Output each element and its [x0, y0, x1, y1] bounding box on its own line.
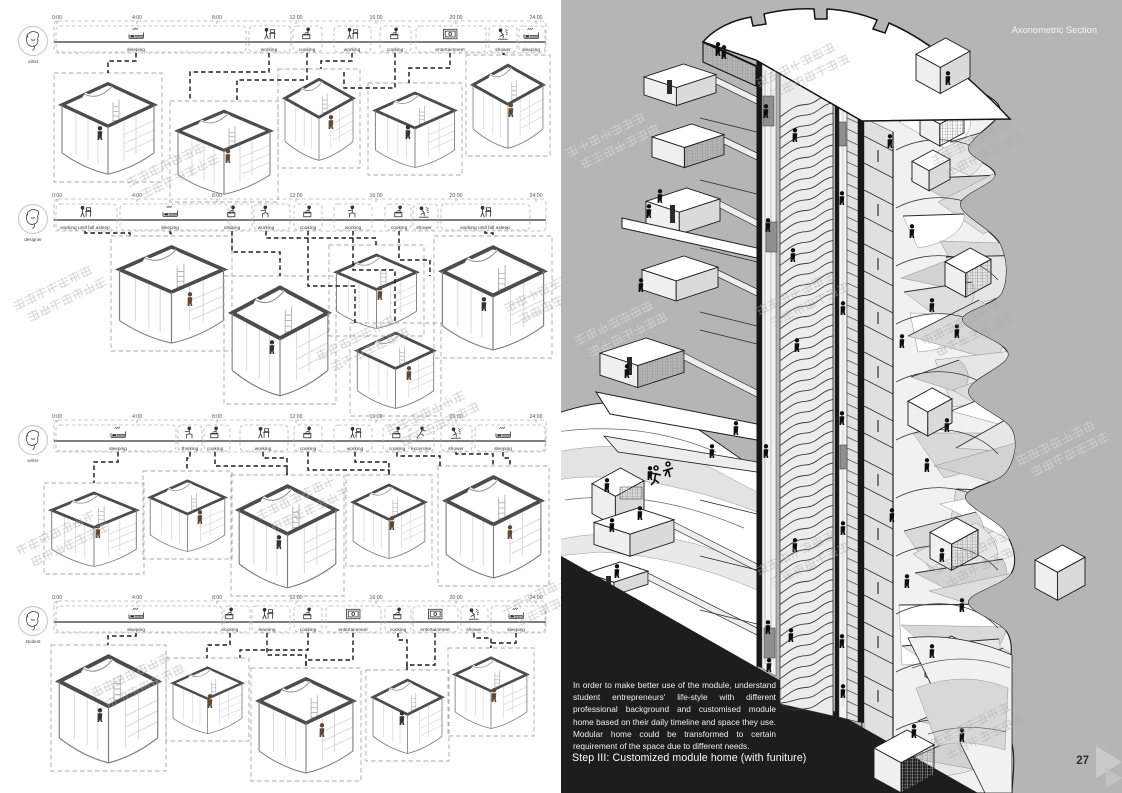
- svg-text:shower: shower: [495, 47, 511, 53]
- svg-text:8:00: 8:00: [212, 414, 222, 420]
- svg-text:shower: shower: [448, 446, 464, 452]
- svg-text:learning: learning: [258, 627, 275, 633]
- svg-text:sleeping: sleeping: [494, 446, 512, 452]
- svg-text:artist: artist: [28, 59, 39, 64]
- svg-text:student: student: [25, 639, 41, 644]
- svg-text:designer: designer: [24, 237, 42, 242]
- svg-text:working: working: [255, 446, 272, 452]
- svg-text:12:00: 12:00: [290, 193, 303, 199]
- svg-text:Axonometric Section: Axonometric Section: [1012, 25, 1097, 35]
- svg-text:cooking: cooking: [224, 225, 241, 231]
- svg-text:24:00: 24:00: [530, 193, 543, 199]
- svg-text:cooking: cooking: [299, 47, 316, 53]
- svg-text:thinking: thinking: [182, 446, 199, 452]
- svg-text:27: 27: [1076, 755, 1089, 767]
- svg-text:sleeping: sleeping: [522, 47, 540, 53]
- svg-text:16:00: 16:00: [370, 414, 383, 420]
- svg-text:20:00: 20:00: [450, 15, 463, 21]
- svg-text:sleeping: sleeping: [507, 627, 525, 633]
- svg-text:16:00: 16:00: [370, 595, 383, 601]
- svg-text:0:00: 0:00: [52, 595, 62, 601]
- svg-text:working until fall asleep: working until fall asleep: [60, 225, 110, 231]
- svg-text:working: working: [345, 225, 362, 231]
- svg-text:24:00: 24:00: [530, 15, 543, 21]
- svg-text:4:00: 4:00: [132, 595, 142, 601]
- svg-text:sleeping: sleeping: [127, 47, 145, 53]
- svg-text:cooking: cooking: [300, 225, 317, 231]
- svg-text:4:00: 4:00: [132, 414, 142, 420]
- svg-text:cooking: cooking: [387, 47, 404, 53]
- svg-text:entertainment: entertainment: [420, 627, 450, 633]
- svg-text:cooking: cooking: [391, 225, 408, 231]
- svg-text:working: working: [344, 47, 361, 53]
- svg-text:4:00: 4:00: [132, 15, 142, 21]
- svg-text:4:00: 4:00: [132, 193, 142, 199]
- svg-text:sleeping: sleeping: [161, 225, 179, 231]
- svg-text:20:00: 20:00: [450, 595, 463, 601]
- svg-text:entertainment: entertainment: [338, 627, 368, 633]
- svg-text:shower: shower: [466, 627, 482, 633]
- svg-text:0:00: 0:00: [52, 414, 62, 420]
- svg-text:16:00: 16:00: [370, 15, 383, 21]
- svg-text:cooking: cooking: [300, 446, 317, 452]
- svg-text:working: working: [258, 225, 275, 231]
- svg-text:cooking: cooking: [389, 446, 406, 452]
- svg-text:writer: writer: [27, 458, 39, 463]
- svg-text:0:00: 0:00: [52, 193, 62, 199]
- svg-text:sleeping: sleeping: [127, 627, 145, 633]
- svg-text:cooking: cooking: [300, 627, 317, 633]
- svg-text:20:00: 20:00: [450, 193, 463, 199]
- svg-text:working: working: [261, 47, 278, 53]
- svg-text:12:00: 12:00: [290, 15, 303, 21]
- svg-text:8:00: 8:00: [212, 15, 222, 21]
- svg-text:24:00: 24:00: [530, 414, 543, 420]
- svg-text:entertainment: entertainment: [435, 47, 465, 53]
- svg-text:excercise: excercise: [411, 446, 432, 452]
- svg-text:working: working: [347, 446, 364, 452]
- svg-text:cooking: cooking: [390, 627, 407, 633]
- svg-text:0:00: 0:00: [52, 15, 62, 21]
- svg-text:shower: shower: [416, 225, 432, 231]
- svg-text:cooking: cooking: [222, 627, 239, 633]
- svg-text:16:00: 16:00: [370, 193, 383, 199]
- svg-text:cooking: cooking: [207, 446, 224, 452]
- svg-text:sleeping: sleeping: [109, 446, 127, 452]
- svg-text:12:00: 12:00: [290, 414, 303, 420]
- svg-text:8:00: 8:00: [212, 595, 222, 601]
- svg-text:working until fall asleep: working until fall asleep: [460, 225, 510, 231]
